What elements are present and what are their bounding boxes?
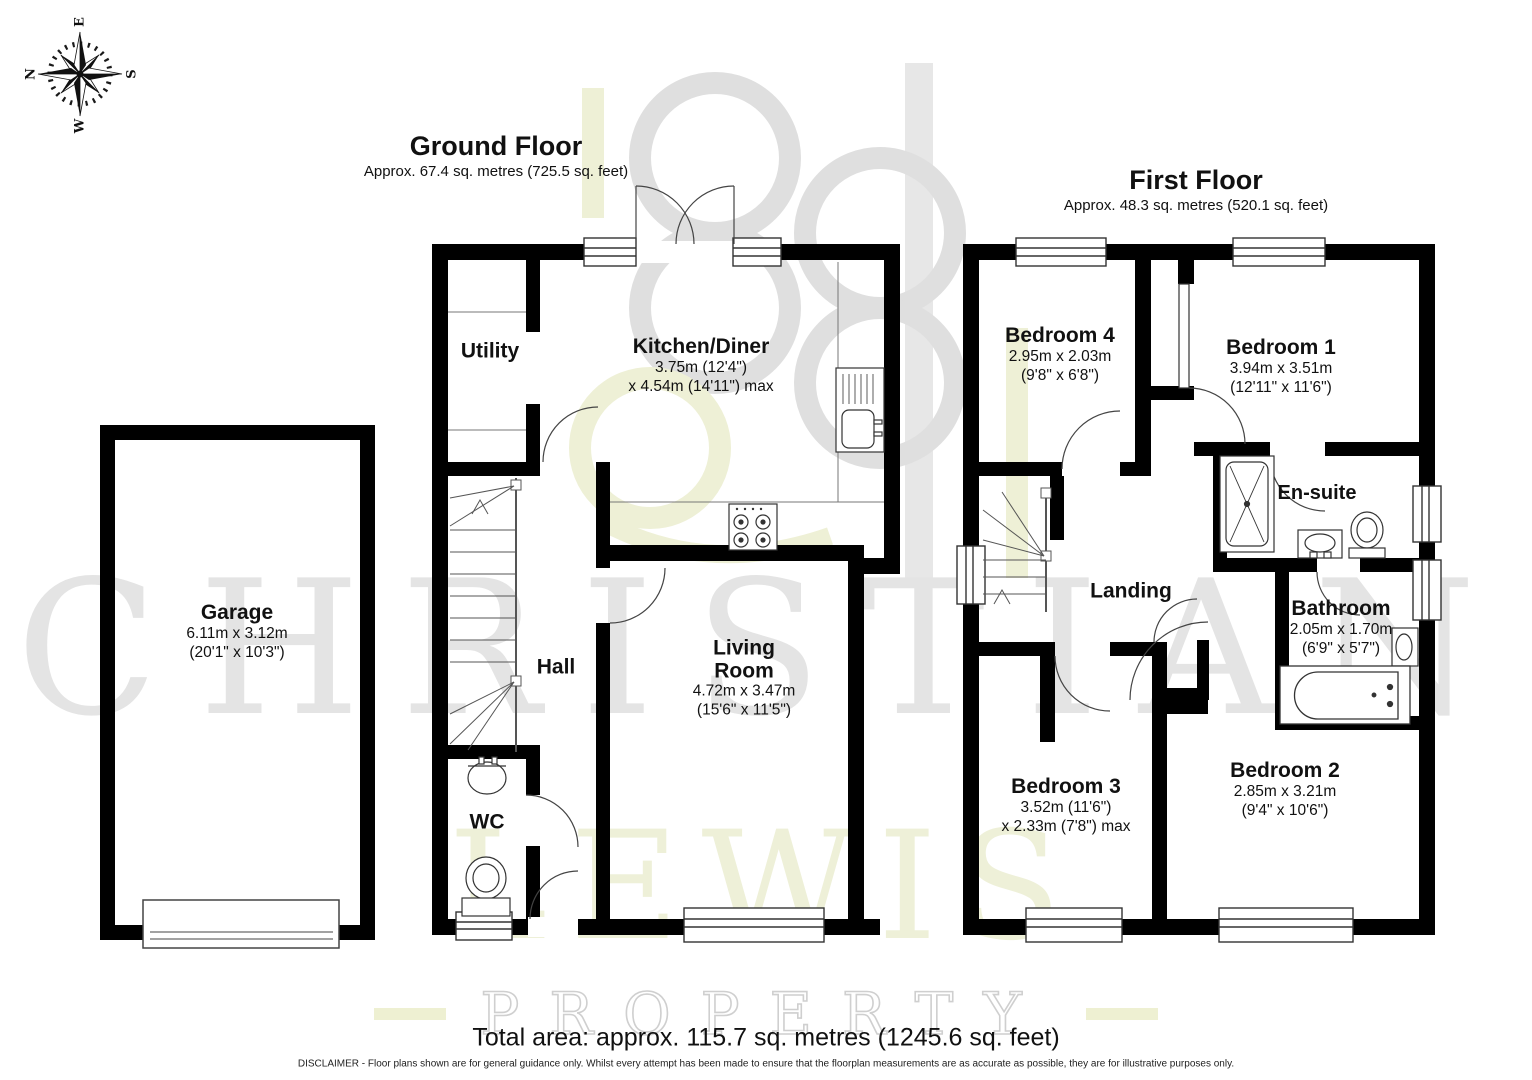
bedroom4-dim1: 2.95m x 2.03m <box>1005 347 1115 366</box>
bedroom2-name: Bedroom 2 <box>1230 760 1340 783</box>
living-name2: Room <box>693 660 796 683</box>
kitchen-name: Kitchen/Diner <box>628 336 773 359</box>
bedroom1-name: Bedroom 1 <box>1226 337 1336 360</box>
kitchen-sink-icon <box>836 368 884 452</box>
ground-floor-title-block: Ground Floor Approx. 67.4 sq. metres (72… <box>364 132 628 182</box>
wc-basin-icon <box>468 757 506 794</box>
window <box>1413 560 1441 620</box>
label-bedroom3: Bedroom 3 3.52m (11'6") x 2.33m (7'8") m… <box>1001 776 1130 836</box>
ensuite-toilet-icon <box>1349 512 1385 558</box>
bedroom3-door-arc <box>1055 656 1110 711</box>
bedroom1-dim2: (12'11" x 11'6") <box>1226 378 1336 397</box>
bathroom-name: Bathroom <box>1290 598 1393 621</box>
label-bedroom4: Bedroom 4 2.95m x 2.03m (9'8" x 6'8") <box>1005 325 1115 385</box>
bathroom-basin-icon <box>1392 628 1418 666</box>
label-hall: Hall <box>537 657 576 680</box>
staircase-ground <box>450 478 521 752</box>
garage-door <box>143 900 339 948</box>
bathtub-icon <box>1280 666 1410 724</box>
window <box>1233 238 1325 266</box>
cupboard-door-arc <box>1154 599 1197 642</box>
label-bedroom2: Bedroom 2 2.85m x 3.21m (9'4" x 10'6") <box>1230 760 1340 820</box>
bedroom2-dim1: 2.85m x 3.21m <box>1230 782 1340 801</box>
french-door-opening <box>636 241 735 263</box>
total-area-text: Total area: approx. 115.7 sq. metres (12… <box>472 1024 1059 1053</box>
garage-dim1: 6.11m x 3.12m <box>186 624 287 643</box>
first-floor-title: First Floor <box>1064 166 1328 196</box>
first-floor-subtitle: Approx. 48.3 sq. metres (520.1 sq. feet) <box>1064 196 1328 216</box>
label-bedroom1: Bedroom 1 3.94m x 3.51m (12'11" x 11'6") <box>1226 337 1336 397</box>
window <box>1016 238 1106 266</box>
first-floor-title-block: First Floor Approx. 48.3 sq. metres (520… <box>1064 166 1328 216</box>
hob-icon <box>729 504 777 550</box>
ensuite-basin-icon <box>1298 530 1342 558</box>
bedroom1-dim1: 3.94m x 3.51m <box>1226 359 1336 378</box>
compass-rose-icon: N E S W <box>24 17 140 134</box>
compass-e: E <box>73 17 88 27</box>
label-living-room: Living Room 4.72m x 3.47m (15'6" x 11'5"… <box>693 637 796 720</box>
wc-door-arc <box>526 795 578 847</box>
wc-toilet-icon <box>462 857 510 916</box>
bedroom4-name: Bedroom 4 <box>1005 325 1115 348</box>
floorplan-drawing: N E S W <box>0 0 1532 1080</box>
label-garage: Garage 6.11m x 3.12m (20'1" x 10'3") <box>186 602 287 662</box>
compass-s: S <box>125 69 140 78</box>
shower-icon <box>1220 456 1274 552</box>
bedroom3-dim1: 3.52m (11'6") <box>1001 798 1130 817</box>
bedroom4-door-arc <box>1062 411 1120 469</box>
bedroom4-dim2: (9'8" x 6'8") <box>1005 366 1115 385</box>
label-landing: Landing <box>1090 581 1172 604</box>
garage-name: Garage <box>186 602 287 625</box>
label-wc: WC <box>470 812 505 835</box>
staircase-first <box>983 488 1051 612</box>
disclaimer-text: DISCLAIMER - Floor plans shown are for g… <box>298 1059 1234 1070</box>
bedroom3-name: Bedroom 3 <box>1001 776 1130 799</box>
garage-dim2: (20'1" x 10'3") <box>186 643 287 662</box>
ground-floor-subtitle: Approx. 67.4 sq. metres (725.5 sq. feet) <box>364 162 628 182</box>
label-utility: Utility <box>461 341 519 364</box>
kitchen-dim2: x 4.54m (14'11") max <box>628 377 773 396</box>
living-dim1: 4.72m x 3.47m <box>693 683 796 702</box>
bedroom3-dim2: x 2.33m (7'8") max <box>1001 817 1130 836</box>
window <box>1219 908 1353 942</box>
window <box>957 546 985 604</box>
living-dim2: (15'6" x 11'5") <box>693 702 796 721</box>
front-door-opening <box>528 917 578 937</box>
compass-w: W <box>73 118 88 134</box>
bedroom2-dim2: (9'4" x 10'6") <box>1230 801 1340 820</box>
ground-floor-title: Ground Floor <box>364 132 628 162</box>
compass-n: N <box>24 68 39 80</box>
kitchen-door-arc <box>543 407 598 462</box>
window <box>584 238 636 266</box>
living-room-door-arc <box>610 568 665 623</box>
stair-direction-arrow <box>994 590 1010 604</box>
label-bathroom: Bathroom 2.05m x 1.70m (6'9" x 5'7") <box>1290 598 1393 658</box>
kitchen-dim1: 3.75m (12'4") <box>628 358 773 377</box>
bathroom-dim2: (6'9" x 5'7") <box>1290 639 1393 658</box>
garage-plan <box>100 425 375 948</box>
window <box>733 238 781 266</box>
label-ensuite: En-suite <box>1278 483 1357 505</box>
window <box>1413 486 1441 542</box>
window <box>684 908 824 942</box>
window <box>1026 908 1122 942</box>
floorplan-page: CHRISTIAN LEWIS PROPERTY N E S W <box>0 0 1532 1080</box>
french-doors <box>636 186 734 244</box>
bathroom-dim1: 2.05m x 1.70m <box>1290 620 1393 639</box>
living-name1: Living <box>693 637 796 660</box>
label-kitchen: Kitchen/Diner 3.75m (12'4") x 4.54m (14'… <box>628 336 773 396</box>
